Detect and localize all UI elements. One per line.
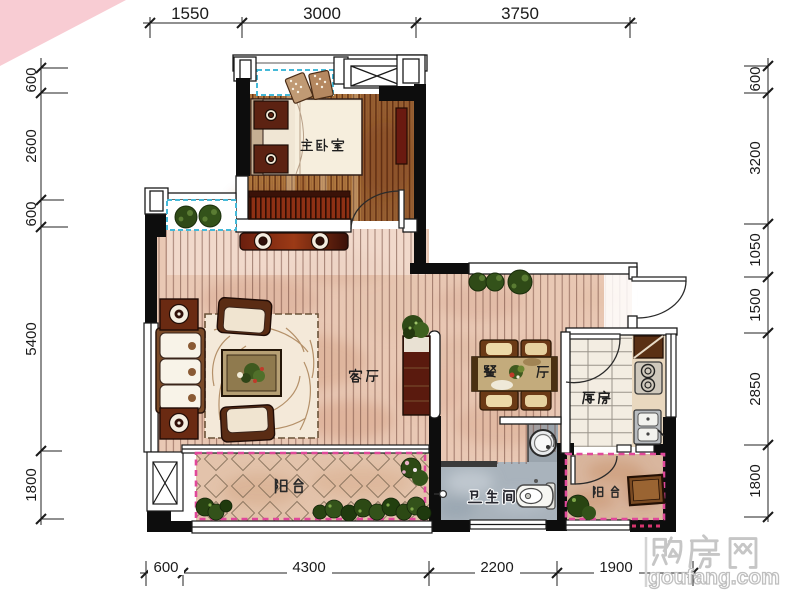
svg-text:5400: 5400 xyxy=(23,322,40,355)
svg-text:3000: 3000 xyxy=(303,4,341,23)
svg-text:3200: 3200 xyxy=(747,141,764,174)
svg-text:1800: 1800 xyxy=(747,464,764,497)
svg-text:3750: 3750 xyxy=(501,4,539,23)
svg-text:2600: 2600 xyxy=(23,129,40,162)
svg-text:600: 600 xyxy=(23,67,40,92)
svg-text:600: 600 xyxy=(153,559,178,576)
svg-text:1900: 1900 xyxy=(599,559,632,576)
svg-text:2200: 2200 xyxy=(480,559,513,576)
svg-text:4300: 4300 xyxy=(292,559,325,576)
svg-text:600: 600 xyxy=(747,66,764,91)
svg-text:1800: 1800 xyxy=(23,468,40,501)
svg-text:goufang.com: goufang.com xyxy=(648,566,780,589)
svg-text:1050: 1050 xyxy=(747,233,764,266)
svg-text:2850: 2850 xyxy=(747,372,764,405)
svg-text:600: 600 xyxy=(23,201,40,226)
svg-text:1550: 1550 xyxy=(171,4,209,23)
svg-text:1500: 1500 xyxy=(747,288,764,321)
